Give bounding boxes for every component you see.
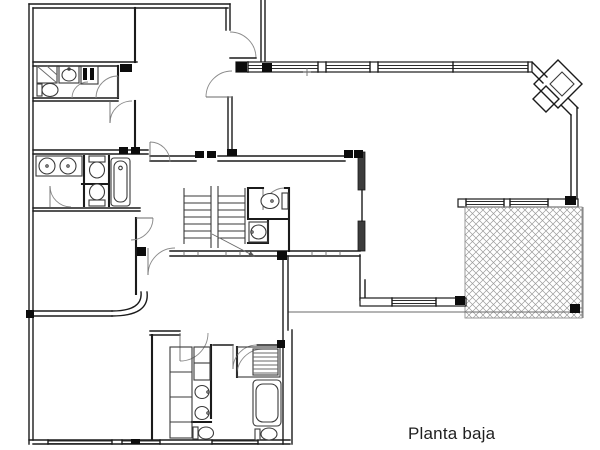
- toilet-icon: [37, 84, 58, 97]
- toilet-icon: [89, 184, 105, 206]
- toilet-icon: [261, 193, 288, 209]
- floor-plan-canvas: [0, 0, 600, 450]
- shower-icon: [37, 66, 57, 83]
- toilet-icon: [193, 427, 214, 439]
- bathtub-icon: [253, 380, 281, 426]
- wc-room: [248, 188, 289, 251]
- corner-pillar-icon: [532, 60, 582, 115]
- bathroom-top: [37, 66, 98, 97]
- plan-caption: Planta baja: [408, 424, 495, 444]
- sink-icon: [195, 386, 209, 420]
- cabinet-icon: [81, 66, 98, 84]
- sink-icon: [249, 222, 268, 242]
- floor-plan-page: Planta baja: [0, 0, 600, 450]
- bottom-suite: [170, 347, 281, 440]
- double-vanity-icon: [36, 156, 82, 176]
- window-glazing-icon: [358, 221, 365, 251]
- window-glazing-icon: [48, 441, 258, 444]
- north-window-wall: [236, 62, 532, 76]
- toilet-icon: [255, 428, 277, 440]
- entry-door-swing: [230, 32, 256, 58]
- dining-bay-walls: [358, 152, 466, 306]
- shower-icon: [237, 347, 280, 377]
- bathtub-icon: [111, 158, 130, 206]
- toilet-icon: [89, 156, 105, 178]
- south-window-wall: [48, 440, 258, 444]
- east-wall: [571, 108, 577, 200]
- interior-partitions: [33, 8, 360, 444]
- terrace-paving-hatch: [465, 207, 582, 318]
- staircase-icon: [184, 186, 254, 256]
- sink-icon: [59, 66, 79, 83]
- door-swing-icon: [50, 71, 285, 375]
- wardrobe-icon: [194, 347, 210, 380]
